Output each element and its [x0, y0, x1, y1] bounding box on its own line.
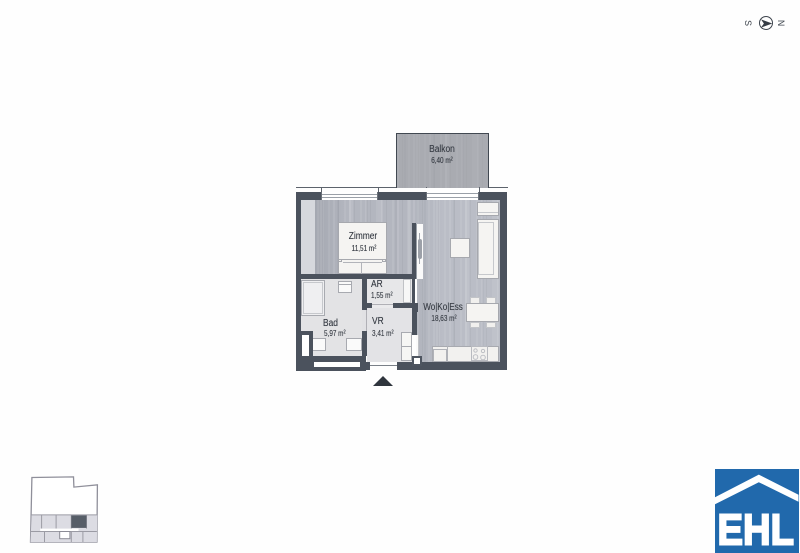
svg-text:EHL: EHL [718, 505, 795, 553]
